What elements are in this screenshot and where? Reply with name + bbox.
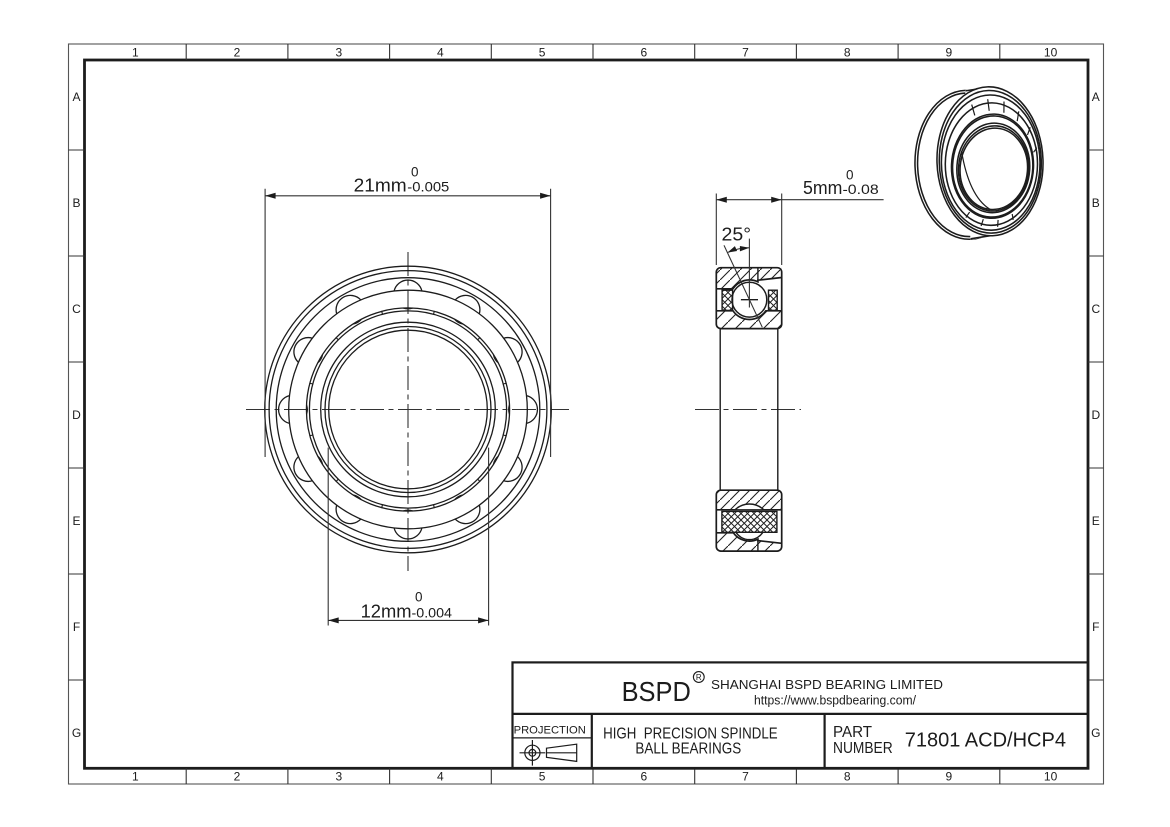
svg-text:F: F <box>1092 620 1099 634</box>
svg-text:9: 9 <box>946 770 953 784</box>
svg-text:2: 2 <box>234 770 241 784</box>
svg-text:4: 4 <box>437 770 444 784</box>
svg-text:25°: 25° <box>722 224 752 245</box>
svg-text:D: D <box>72 408 81 422</box>
svg-text:9: 9 <box>946 46 953 60</box>
svg-text:A: A <box>72 90 80 104</box>
svg-text:7: 7 <box>742 46 749 60</box>
svg-text:0: 0 <box>846 168 854 183</box>
svg-text:2: 2 <box>234 46 241 60</box>
svg-text:C: C <box>72 302 81 316</box>
svg-text:5: 5 <box>539 770 546 784</box>
svg-text:6: 6 <box>640 46 647 60</box>
svg-text:3: 3 <box>335 46 342 60</box>
svg-text:10: 10 <box>1044 46 1058 60</box>
svg-text:B: B <box>72 196 80 210</box>
svg-text:E: E <box>72 514 80 528</box>
svg-text:5: 5 <box>539 46 546 60</box>
svg-text:10: 10 <box>1044 770 1058 784</box>
svg-text:0: 0 <box>415 590 423 605</box>
svg-text:PART: PART <box>833 724 873 741</box>
svg-text:https://www.bspdbearing.com/: https://www.bspdbearing.com/ <box>754 693 916 708</box>
svg-text:0: 0 <box>411 165 419 180</box>
svg-text:G: G <box>72 726 81 740</box>
svg-text:8: 8 <box>844 770 851 784</box>
svg-text:71801 ACD/HCP4: 71801 ACD/HCP4 <box>905 729 1066 751</box>
svg-text:C: C <box>1091 302 1100 316</box>
svg-text:BALL BEARINGS: BALL BEARINGS <box>635 740 741 757</box>
svg-text:PROJECTION: PROJECTION <box>514 725 586 737</box>
svg-text:E: E <box>1092 514 1100 528</box>
svg-text:-0.08: -0.08 <box>843 182 879 197</box>
svg-text:D: D <box>1091 408 1100 422</box>
svg-text:1: 1 <box>132 46 139 60</box>
svg-text:SHANGHAI BSPD BEARING LIMITED: SHANGHAI BSPD BEARING LIMITED <box>711 677 943 692</box>
svg-text:B: B <box>1092 196 1100 210</box>
svg-text:4: 4 <box>437 46 444 60</box>
svg-text:12mm: 12mm <box>361 601 412 622</box>
svg-text:8: 8 <box>844 46 851 60</box>
svg-text:1: 1 <box>132 770 139 784</box>
svg-text:21mm: 21mm <box>354 174 407 195</box>
svg-text:3: 3 <box>335 770 342 784</box>
svg-text:F: F <box>73 620 80 634</box>
svg-text:A: A <box>1092 90 1100 104</box>
svg-text:-0.005: -0.005 <box>407 179 449 194</box>
svg-text:R: R <box>696 673 702 682</box>
svg-text:7: 7 <box>742 770 749 784</box>
svg-text:NUMBER: NUMBER <box>833 740 893 757</box>
svg-text:6: 6 <box>640 770 647 784</box>
svg-text:5mm: 5mm <box>803 177 842 198</box>
svg-text:BSPD: BSPD <box>622 676 691 707</box>
svg-text:-0.004: -0.004 <box>412 606 453 621</box>
svg-text:G: G <box>1091 726 1100 740</box>
